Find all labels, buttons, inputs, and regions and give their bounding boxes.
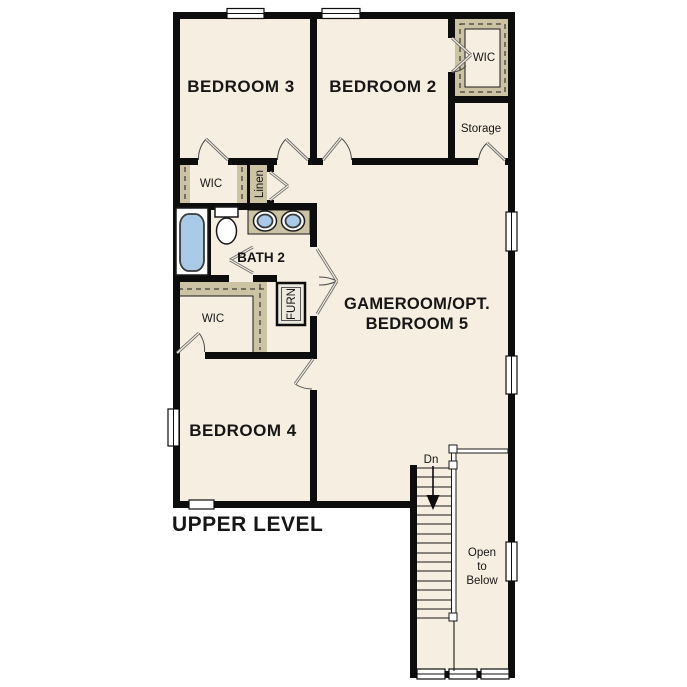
window [189,500,214,509]
gameroom-label-line2: BEDROOM 5 [366,315,469,333]
window [417,669,445,679]
open-to-below-line3: Below [466,575,498,587]
floor-plan-drawing: BEDROOM 3 BEDROOM 2 WIC Storage WIC Line… [0,0,687,687]
open-to-below-line2: to [477,561,487,573]
bath2-label: BATH 2 [237,250,285,265]
building-floor [173,12,515,678]
window [322,9,360,19]
window [506,542,517,581]
window [506,212,517,251]
sink-icon [282,211,305,231]
furnace-label: FURN [286,288,298,320]
toilet-icon [215,207,238,244]
bedroom2-label: BEDROOM 2 [329,77,436,96]
floor-plan-page: BEDROOM 3 BEDROOM 2 WIC Storage WIC Line… [0,0,687,687]
plan-title: UPPER LEVEL [172,513,323,536]
window [227,9,264,19]
bedroom4-label: BEDROOM 4 [189,421,297,440]
window [449,669,477,679]
stairs-down-label: Dn [424,454,439,466]
sink-icon [254,211,277,231]
linen-label: Linen [254,170,266,198]
window [481,669,509,679]
bathtub-icon [180,214,204,271]
wic-top-label: WIC [473,52,495,64]
gameroom-label-line1: GAMEROOM/OPT. [344,295,490,313]
bedroom3-label: BEDROOM 3 [187,77,294,96]
open-to-below-line1: Open [468,547,496,559]
window [168,409,179,446]
wic-lower-label: WIC [202,313,224,325]
wic-mid-label: WIC [200,178,222,190]
window [506,356,517,394]
storage-label: Storage [461,123,501,135]
